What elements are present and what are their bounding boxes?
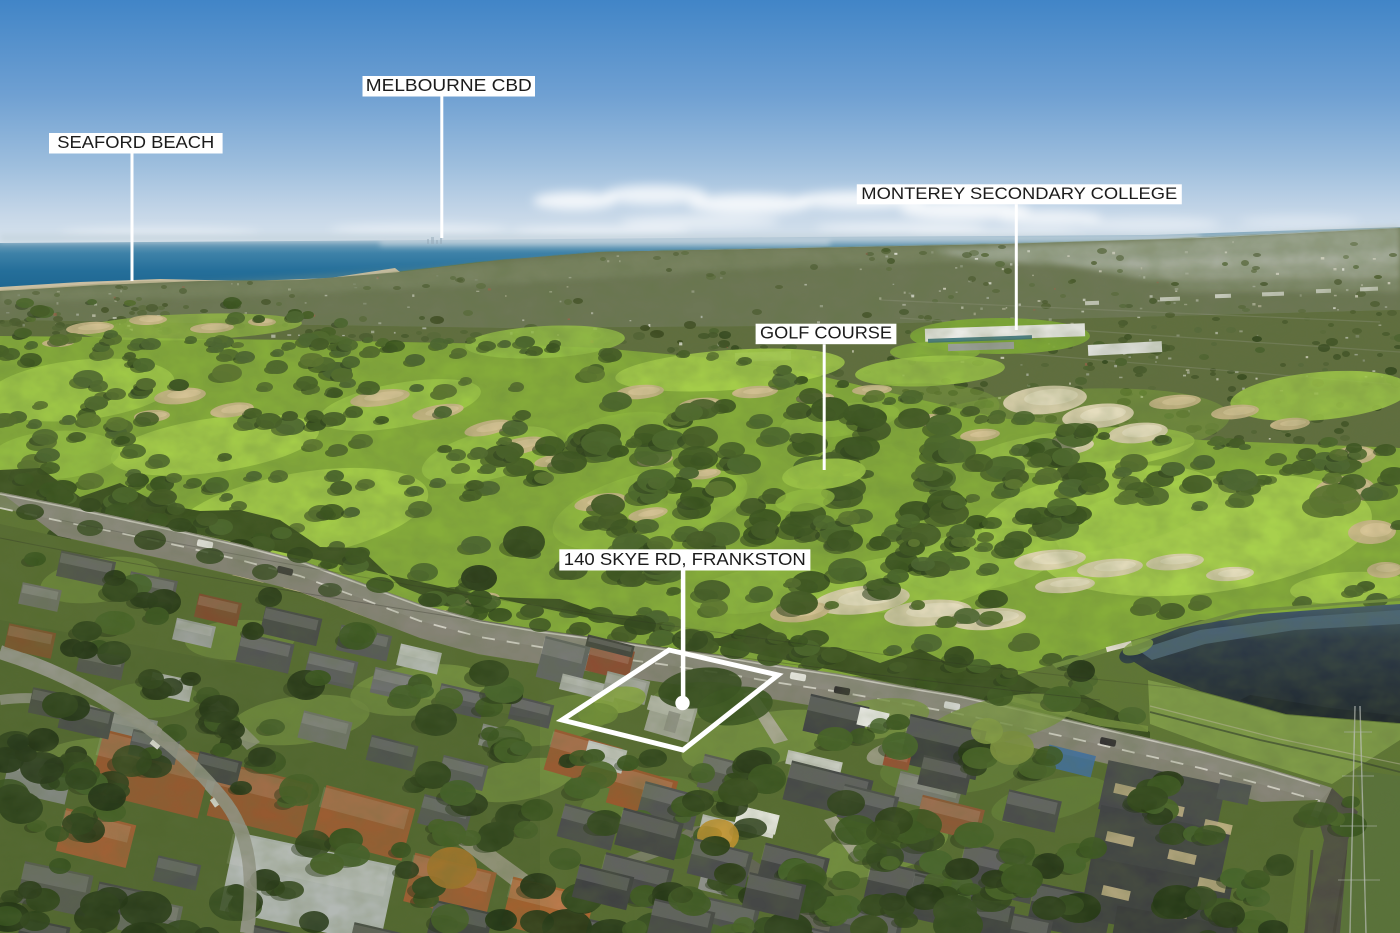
svg-text:140 SKYE RD, FRANKSTON: 140 SKYE RD, FRANKSTON: [564, 549, 806, 569]
svg-text:SEAFORD BEACH: SEAFORD BEACH: [57, 132, 214, 152]
svg-text:GOLF COURSE: GOLF COURSE: [760, 323, 892, 343]
svg-text:MONTEREY SECONDARY COLLEGE: MONTEREY SECONDARY COLLEGE: [861, 184, 1177, 203]
svg-text:MELBOURNE CBD: MELBOURNE CBD: [366, 75, 532, 95]
